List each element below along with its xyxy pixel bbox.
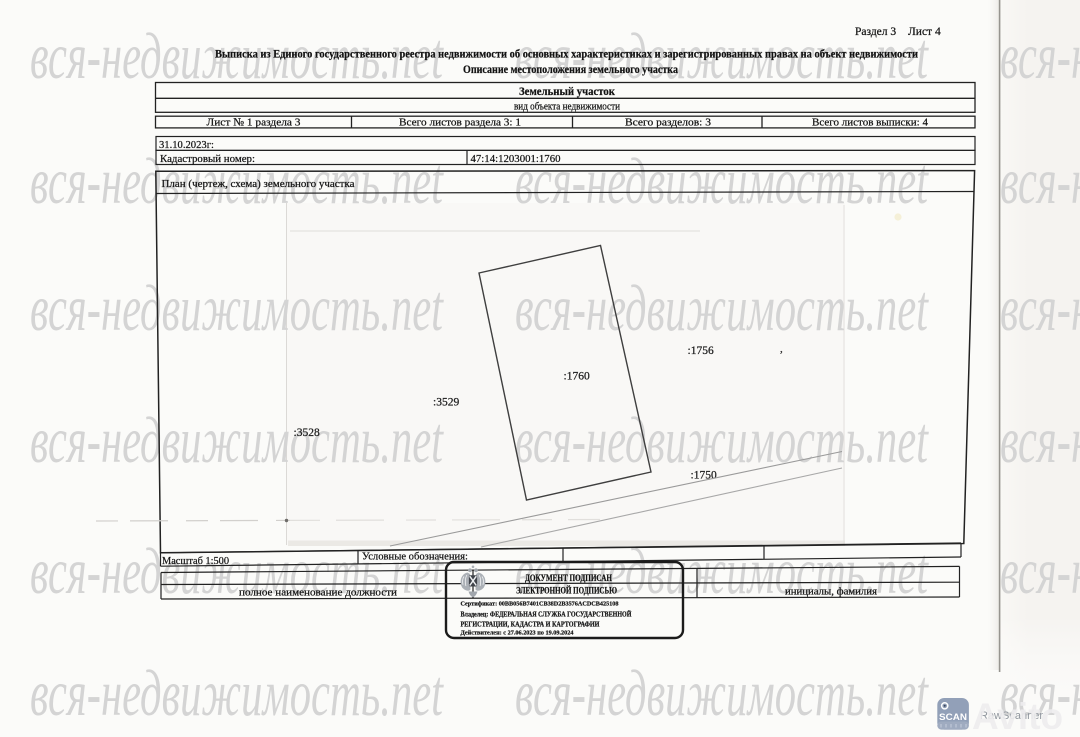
svg-text:Раздел 3: Раздел 3 [855, 26, 896, 38]
svg-text:вид объекта недвижимости: вид объекта недвижимости [514, 100, 620, 112]
svg-text:,: , [780, 343, 783, 355]
svg-text:Действителен: с 27.06.2023 по: Действителен: с 27.06.2023 по 19.09.2024 [461, 630, 575, 637]
svg-text:Сертификат: 00BB056B7401CB38D2: Сертификат: 00BB056B7401CB38D2B3576ACDCB… [461, 601, 620, 608]
svg-text:Описание местоположения земель: Описание местоположения земельного участ… [463, 64, 678, 76]
svg-text:вся-недвижимость.net: вся-недвижимость.net [515, 657, 929, 730]
svg-text:Всего листов раздела 3: 1: Всего листов раздела 3: 1 [399, 117, 521, 129]
svg-text:Условные обозначения:: Условные обозначения: [362, 551, 468, 563]
svg-text:вся-недвижимость.net: вся-недвижимость.net [1000, 272, 1080, 345]
svg-text:вся-недвижимость.net: вся-недвижимость.net [515, 404, 929, 477]
svg-text:ДОКУМЕНТ ПОДПИСАН: ДОКУМЕНТ ПОДПИСАН [525, 573, 612, 583]
svg-text:инициалы, фамилия: инициалы, фамилия [785, 587, 877, 598]
svg-text:Кадастровый номер:: Кадастровый номер: [160, 153, 255, 165]
svg-text::3529: :3529 [433, 397, 459, 409]
svg-text:вся-недвижимость.net: вся-недвижимость.net [1000, 404, 1080, 477]
svg-text:полное наименование должности: полное наименование должности [239, 588, 397, 599]
svg-text:47:14:1203001:1760: 47:14:1203001:1760 [471, 153, 561, 165]
svg-text:вся-недвижимость.net: вся-недвижимость.net [515, 145, 929, 218]
svg-text:вся-недвижимость.net: вся-недвижимость.net [30, 404, 444, 477]
svg-text::1756: :1756 [688, 345, 714, 357]
svg-text:ЭЛЕКТРОННОЙ ПОДПИСЬЮ: ЭЛЕКТРОННОЙ ПОДПИСЬЮ [516, 586, 617, 596]
svg-text::1750: :1750 [691, 470, 717, 482]
svg-text:Avito: Avito [972, 696, 1063, 737]
svg-text:Земельный участок: Земельный участок [519, 86, 615, 98]
svg-text:вся-недвижимость.net: вся-недвижимость.net [30, 657, 444, 730]
svg-text:вся-недвижимость.net: вся-недвижимость.net [1000, 535, 1080, 608]
svg-text:РЕГИСТРАЦИИ, КАДАСТРА И КАРТОГ: РЕГИСТРАЦИИ, КАДАСТРА И КАРТОГРАФИИ [461, 621, 600, 629]
svg-text::1760: :1760 [564, 371, 590, 383]
svg-text:Лист 4: Лист 4 [908, 26, 941, 38]
svg-text:Масштаб 1:500: Масштаб 1:500 [162, 555, 229, 567]
svg-text::3528: :3528 [294, 427, 320, 439]
svg-text:вся-недвижимость.net: вся-недвижимость.net [1000, 145, 1080, 218]
svg-text:Всего листов выписки: 4: Всего листов выписки: 4 [812, 117, 928, 129]
svg-text:Выписка из Единого государстве: Выписка из Единого государственного реес… [215, 49, 918, 61]
svg-text:SCAN: SCAN [939, 712, 967, 723]
svg-text:31.10.2023г:: 31.10.2023г: [159, 139, 214, 151]
svg-text:вся-недвижимость.net: вся-недвижимость.net [1000, 20, 1080, 93]
svg-text:План (чертеж, схема) земельног: План (чертеж, схема) земельного участка [162, 179, 355, 190]
svg-text:Всего разделов: 3: Всего разделов: 3 [625, 117, 712, 129]
svg-text:вся-недвижимость.net: вся-недвижимость.net [515, 272, 929, 345]
svg-text:вся-недвижимость.net: вся-недвижимость.net [30, 272, 444, 345]
svg-text:Владелец: ФЕДЕРАЛЬНАЯ СЛУЖБА Г: Владелец: ФЕДЕРАЛЬНАЯ СЛУЖБА ГОСУДАРСТВЕ… [461, 611, 632, 619]
svg-text:Лист № 1 раздела 3: Лист № 1 раздела 3 [207, 117, 302, 129]
